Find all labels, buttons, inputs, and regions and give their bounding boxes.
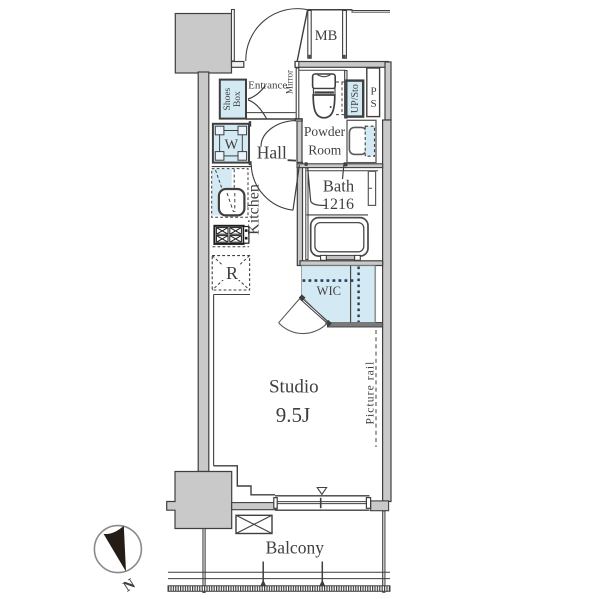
svg-text:W: W	[224, 137, 238, 153]
svg-text:Shoes: Shoes	[223, 87, 233, 110]
svg-text:Powder: Powder	[304, 124, 346, 139]
svg-text:P: P	[371, 85, 377, 97]
svg-text:Balcony: Balcony	[266, 538, 325, 558]
svg-text:WIC: WIC	[317, 284, 341, 298]
svg-text:Mirror: Mirror	[284, 70, 294, 94]
svg-text:Entrance: Entrance	[248, 79, 287, 91]
svg-text:Room: Room	[308, 142, 342, 157]
svg-text:S: S	[371, 98, 377, 110]
svg-text:Box: Box	[233, 91, 243, 107]
svg-text:R: R	[226, 263, 238, 283]
svg-text:Bath: Bath	[323, 177, 355, 196]
svg-text:UP/Sto: UP/Sto	[350, 84, 361, 113]
svg-text:9.5J: 9.5J	[276, 403, 310, 427]
svg-text:1216: 1216	[322, 196, 354, 213]
svg-text:Studio: Studio	[269, 377, 319, 398]
svg-text:Kitchen: Kitchen	[246, 184, 263, 235]
svg-text:Picture rail: Picture rail	[364, 361, 376, 425]
svg-text:MB: MB	[315, 28, 338, 44]
